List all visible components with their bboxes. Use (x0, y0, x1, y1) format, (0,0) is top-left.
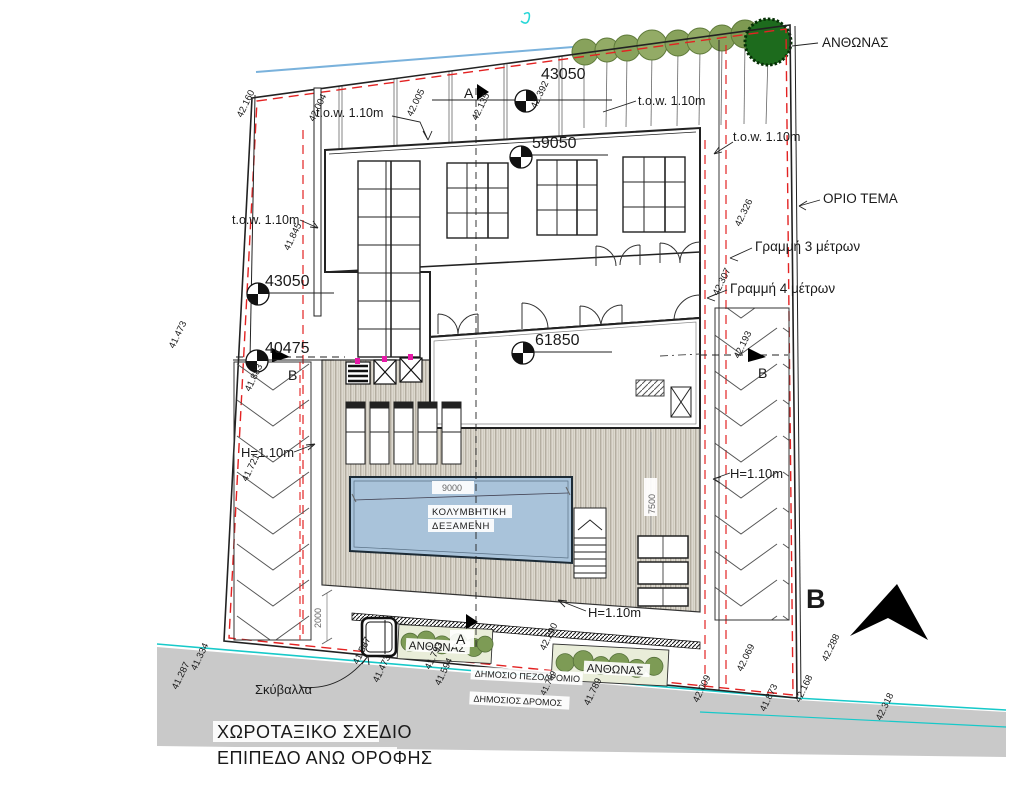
spot-elevation: 42.288 (820, 632, 843, 663)
spot-elevation: 42.005 (405, 87, 428, 118)
spot-elevation: 42.326 (733, 197, 756, 228)
left-ramp (234, 362, 311, 640)
spot-elevation: 42.160 (235, 88, 258, 119)
roof-hatch-box (671, 387, 691, 417)
pool-label-line2: ΔΕΞΑΜΕΝΗ (432, 521, 490, 532)
gap-dimension: 2000 (313, 590, 332, 644)
equipment-hatch (636, 380, 664, 396)
spot-elevation: 41.473 (167, 319, 190, 350)
section-a-bottom-label: A (456, 631, 466, 647)
level-61850: 61850 (535, 332, 580, 349)
tree-row (572, 19, 791, 65)
deck-tables (638, 536, 688, 606)
tow-label-1: t.o.w. 1.10m (316, 106, 383, 120)
grammi-4-label: Γραμμή 4 μέτρων (730, 281, 835, 296)
tow-label-4: t.o.w. 1.10m (733, 130, 800, 144)
tow-label-2: t.o.w. 1.10m (638, 94, 705, 108)
tow-label-3: t.o.w. 1.10m (232, 213, 299, 227)
h-wall-label-bottom: H=1.10m (588, 605, 641, 620)
title-line2: ΕΠΙΠΕΔΟ ΑΝΩ ΟΡΟΦΗΣ (217, 748, 433, 768)
north-letter: B (806, 584, 826, 614)
skylight-grid-3 (623, 157, 685, 232)
anthonas-top-label: ΑΝΘΩΝΑΣ (822, 35, 888, 50)
grammi-3-label: Γραμμή 3 μέτρων (755, 239, 860, 254)
title-line1: ΧΩΡΟΤΑΞΙΚΟ ΣΧΕΔΙΟ (217, 722, 412, 742)
pool-width-value: 7500 (647, 494, 657, 514)
level-left-43050: 43050 (265, 273, 310, 290)
skylight-grid-1 (447, 163, 508, 238)
north-arrow: B (806, 584, 928, 640)
pool-length-value: 9000 (442, 483, 462, 493)
contour-squiggle (521, 13, 529, 23)
pool-stairs (574, 508, 606, 578)
sun-loungers (346, 402, 461, 464)
h-wall-label-right: H=1.10m (730, 466, 783, 481)
section-b-left-label: B (288, 367, 297, 383)
water-feature-line (256, 47, 573, 72)
left-room-grid (358, 161, 420, 357)
spot-elevation: 42.069 (735, 642, 758, 673)
section-a-top-label: A (464, 85, 474, 101)
benchmark-top-43050: 43050 (432, 66, 612, 112)
level-top-43050: 43050 (541, 66, 586, 83)
pool-label-line1: ΚΟΛΥΜΒΗΤΙΚΗ (432, 507, 507, 518)
gap-dimension-value: 2000 (313, 608, 323, 628)
skyvalla-label: Σκύβαλλα (255, 682, 312, 697)
deck-hatch-2 (400, 358, 422, 382)
skylight-grid-2 (537, 160, 597, 235)
deck-vents (346, 354, 422, 384)
section-b-right-label: B (758, 365, 767, 381)
orio-tema-label: ΟΡΙΟ ΤΕΜΑ (823, 191, 898, 206)
deck-hatch-1 (374, 360, 396, 384)
level-left-40475: 40475 (265, 340, 310, 357)
level-59050: 59050 (532, 135, 577, 152)
site-plan-drawing: 9000 7500 ΚΟΛΥΜΒΗΤΙΚΗ ΔΕΞΑΜΕΝΗ (0, 0, 1024, 785)
